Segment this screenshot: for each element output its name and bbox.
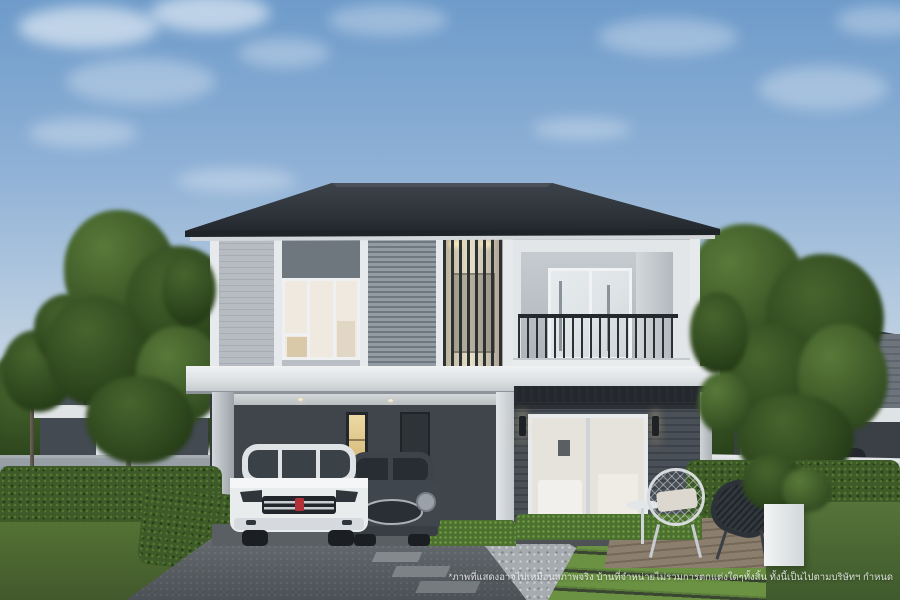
wall-sconce bbox=[519, 416, 526, 436]
rendering-canvas: *ภาพที่แสดงอาจไม่เหมือนสภาพจริง บ้านที่จ… bbox=[0, 0, 900, 600]
pergola-slats bbox=[514, 386, 712, 402]
bedroom-window bbox=[282, 278, 360, 360]
window-mullion bbox=[333, 281, 336, 357]
wall-sconce bbox=[652, 416, 659, 436]
pergola-overhang bbox=[514, 386, 712, 402]
table-leg bbox=[641, 508, 644, 544]
stepping-stone bbox=[372, 552, 422, 562]
chair-leg bbox=[715, 530, 727, 559]
window-mullion bbox=[307, 281, 310, 357]
foreground-leaves bbox=[162, 252, 216, 326]
hip-roof bbox=[170, 174, 730, 244]
interior-picture-frame bbox=[558, 440, 570, 456]
wire-chair bbox=[645, 466, 711, 560]
stepping-stone bbox=[392, 566, 451, 577]
vertical-slat-screen bbox=[443, 238, 503, 370]
chair-leg bbox=[649, 524, 660, 558]
siding-panel-light bbox=[219, 238, 274, 370]
foreground-leaves bbox=[698, 372, 750, 434]
ceiling-downlight bbox=[388, 399, 393, 402]
window-trim bbox=[360, 236, 368, 370]
slat-trim bbox=[503, 236, 513, 370]
balcony-balusters bbox=[518, 318, 678, 360]
siding-panel-blind bbox=[368, 238, 436, 370]
carport-ceiling bbox=[212, 394, 512, 405]
white-planter-box bbox=[764, 504, 804, 566]
foreground-leaves bbox=[690, 292, 748, 374]
interior-hint bbox=[337, 321, 355, 357]
window-mullion bbox=[285, 333, 309, 336]
suv-car bbox=[226, 440, 372, 550]
bed-hint bbox=[287, 337, 307, 357]
slat-trim bbox=[436, 236, 443, 370]
pergola-shadow bbox=[514, 402, 712, 409]
ceiling-downlight bbox=[298, 398, 303, 401]
watermark-disclaimer-text: *ภาพที่แสดงอาจไม่เหมือนสภาพจริง บ้านที่จ… bbox=[449, 570, 893, 585]
window-trim bbox=[274, 236, 282, 370]
chair-leg bbox=[691, 524, 702, 558]
